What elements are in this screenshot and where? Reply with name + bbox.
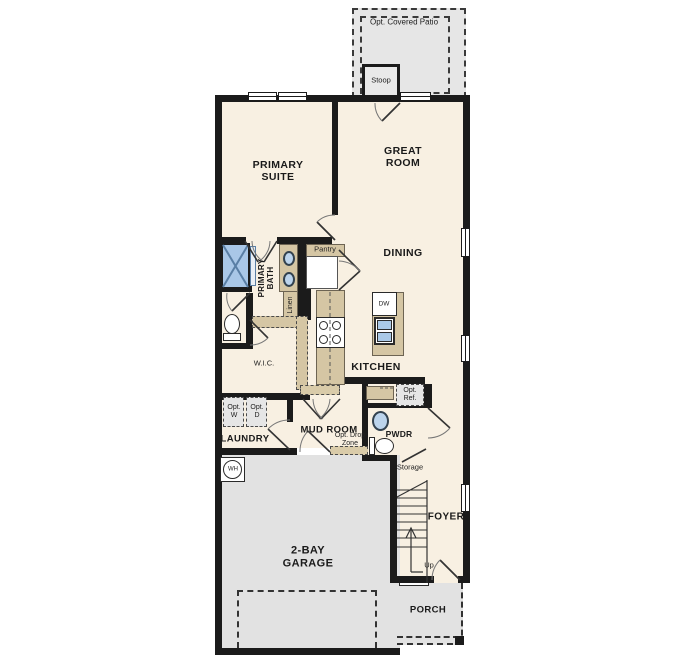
- porch-column: [455, 636, 464, 645]
- wall-porch-top-right: [458, 576, 470, 583]
- wic-label: W.I.C.: [254, 360, 274, 369]
- primary-suite-label: PRIMARY SUITE: [238, 159, 318, 183]
- mud-room-label: MUD ROOM: [300, 426, 357, 437]
- garage-door-dashed: [237, 590, 377, 648]
- wall-kitchen-to-pwdr: [345, 377, 425, 384]
- wall-porch-top: [390, 576, 434, 583]
- linen-label: Linen: [287, 296, 295, 313]
- bath-toilet-bowl: [224, 314, 240, 334]
- window-suite-2: [278, 92, 307, 101]
- window-dining-right: [461, 335, 470, 362]
- bath-sink-2: [283, 272, 295, 287]
- pantry-label: Pantry: [314, 246, 336, 255]
- burner-3: [319, 335, 328, 344]
- wall-garage-right: [390, 455, 397, 583]
- wall-left: [215, 95, 222, 655]
- garage-label: 2-BAY GARAGE: [268, 544, 348, 569]
- wall-toilet-bottom: [222, 343, 253, 349]
- great-room-label: GREAT ROOM: [375, 145, 431, 169]
- window-great-top: [400, 92, 431, 101]
- primary-bath-label: PRIMARY BATH: [257, 250, 275, 306]
- wall-garage-bottom: [215, 648, 400, 655]
- pwdr-label: PWDR: [386, 430, 413, 440]
- burner-2: [332, 321, 341, 330]
- floor-plan: Opt. Covered Patio Stoop: [0, 0, 687, 661]
- window-great-right-1: [461, 228, 470, 257]
- pwdr-sink: [372, 411, 389, 431]
- bath-sink-1: [283, 251, 295, 266]
- kitchen-label: KITCHEN: [351, 361, 400, 373]
- wall-vanity-right: [297, 244, 306, 292]
- pwdr-counter: [366, 386, 394, 400]
- bath-toilet-tank: [223, 333, 241, 341]
- pwdr-toilet-bowl: [375, 438, 394, 454]
- island-sink-basin-2: [377, 332, 392, 342]
- burner-1: [319, 321, 328, 330]
- wall-garage-top-left: [215, 448, 297, 455]
- dining-label: DINING: [383, 247, 422, 259]
- foyer-label: FOYER: [428, 511, 464, 523]
- island-sink-basin-1: [377, 320, 392, 330]
- porch-bottom-dashed-line: [397, 636, 459, 638]
- stoop-label: Stoop: [371, 77, 391, 86]
- wall-pwdr-right: [424, 384, 432, 408]
- porch-label: PORCH: [410, 606, 446, 617]
- water-heater-label: WH: [228, 467, 238, 474]
- wall-bath-top-right: [277, 237, 332, 244]
- storage-label: Storage: [397, 464, 423, 473]
- wall-laundry-mud-divider: [287, 398, 293, 422]
- dishwasher-label: DW: [378, 300, 391, 307]
- pantry-interior: [306, 256, 338, 289]
- up-label: Up: [424, 562, 434, 571]
- shower-door-strip: [250, 246, 256, 286]
- opt-ref-label: Opt. Ref.: [398, 387, 422, 403]
- opt-washer-label: Opt. W: [225, 404, 243, 420]
- window-suite-1: [248, 92, 277, 101]
- window-foyer-right: [461, 484, 470, 512]
- wall-suite-great-divider: [332, 102, 338, 215]
- laundry-label: LAUNDRY: [221, 435, 270, 446]
- mudroom-bench: [300, 385, 340, 395]
- shower: [221, 243, 250, 289]
- opt-dryer-label: Opt. D: [248, 404, 266, 420]
- burner-4: [332, 335, 341, 344]
- wic-shelf-right: [296, 316, 308, 390]
- wall-pwdr-bottom: [362, 455, 397, 461]
- opt-covered-patio-label: Opt. Covered Patio: [370, 17, 438, 26]
